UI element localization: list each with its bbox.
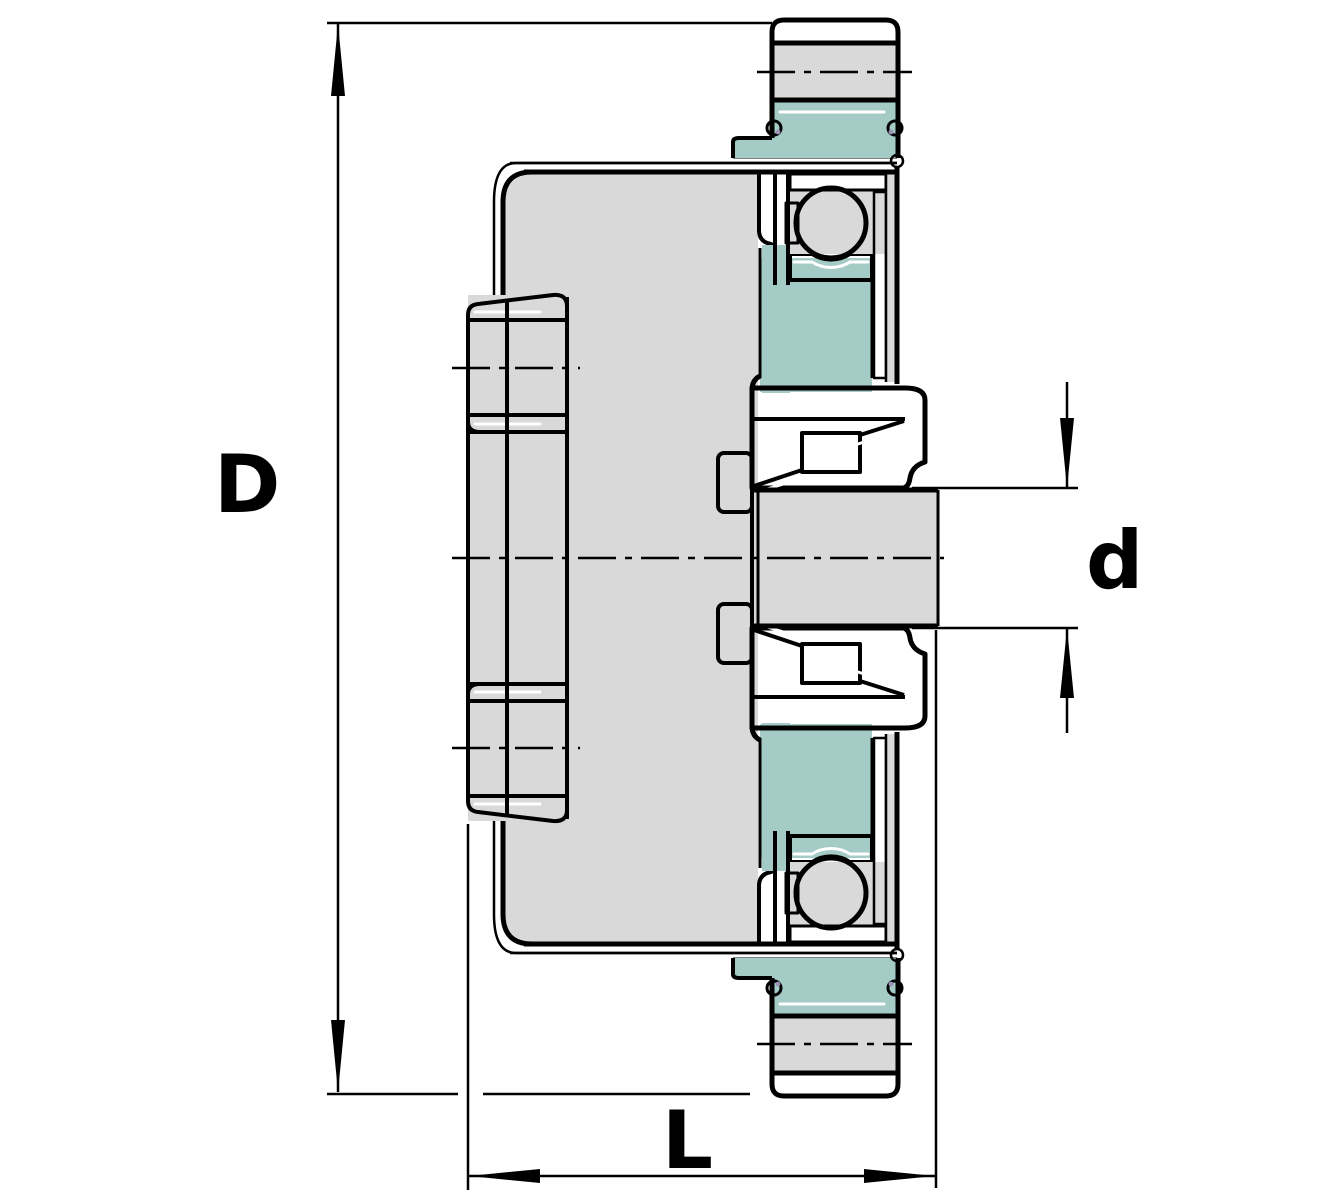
L-label: L [662,1094,713,1187]
unit-top-half [468,20,938,558]
d-arrow-down [1060,418,1074,488]
D-label: D [214,438,280,531]
drawing-page: D d L [0,0,1330,1200]
dimension-d: d [912,382,1143,733]
D-arrow-down [331,1020,345,1092]
D-arrow-up [331,24,345,96]
d-label: d [1086,514,1143,607]
unit-bottom-half [468,558,938,1096]
d-arrow-up [1060,628,1074,698]
bearing-unit-section-drawing: D d L [0,0,1330,1200]
L-arrow-right [864,1169,935,1183]
L-arrow-left [469,1169,540,1183]
